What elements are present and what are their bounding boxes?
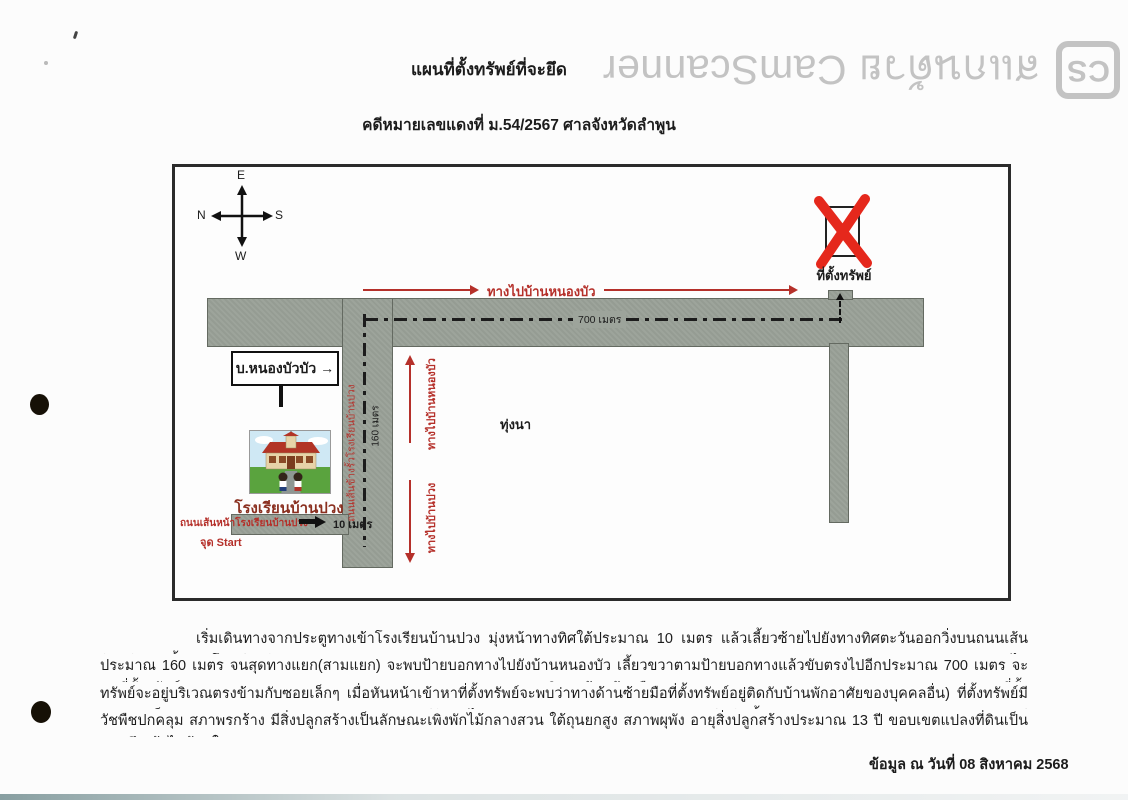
case-number-line: คดีหมายเลขแดงที่ ม.54/2567 ศาลจังหวัดลำพ… (362, 112, 676, 137)
scan-speck-top (73, 31, 78, 40)
driveway-arrow-up-icon (836, 293, 844, 300)
binder-hole-mark-bottom (31, 701, 51, 723)
field-label: ทุ่งนา (500, 414, 531, 435)
driveway-dashed-line (839, 301, 841, 323)
page-title: แผนที่ตั้งทรัพย์ที่จะยึด (411, 56, 567, 83)
side-road-name-label: ถนนเส้นข้างรั้วโรงเรียนบ้านปวง (345, 384, 360, 521)
property-location-label: ที่ตั้งทรัพย์ (816, 265, 871, 286)
distance-label-160m: 160 เมตร (369, 405, 384, 446)
start-point-label: จุด Start (200, 533, 242, 551)
main-road-horizontal (207, 298, 924, 347)
route-down-label: ทางไปบ้านปวง (422, 483, 440, 554)
village-sign-nongbuabua: บ.หนองบัวบัว → (231, 351, 339, 386)
road-centerline-vertical (363, 314, 366, 547)
camscanner-watermark: CS สแกนด้วย CamScanner (585, 30, 1120, 110)
route-up-label: ทางไปบ้านหนองบัว (422, 358, 440, 450)
property-x-mark-icon (809, 191, 877, 271)
route-up-arrow-head-icon (405, 355, 415, 365)
compass-label-top: E (237, 168, 245, 182)
data-as-of-date: ข้อมูล ณ วันที่ 08 สิงหาคม 2568 (869, 753, 1069, 776)
compass-cross-icon (197, 171, 287, 261)
route-arrow-shaft-left (363, 289, 470, 291)
front-road-arrow-shaft (299, 519, 315, 524)
distance-label-700m: 700 เมตร (573, 311, 626, 328)
route-down-arrow-shaft (409, 480, 411, 553)
scan-speck-left (44, 61, 48, 65)
description-line-4: วัชพืชปกคลุม สภาพรกร้าง มีสิ่งปลูกสร้างเ… (100, 709, 1028, 736)
compass-label-left: N (197, 208, 206, 222)
route-arrow-head-right-icon (789, 285, 798, 295)
route-down-arrow-head-icon (405, 553, 415, 563)
distance-label-10m: 10 เมตร (333, 515, 372, 533)
description-line-1: เริ่มเดินทางจากประตูทางเข้าโรงเรียนบ้านป… (100, 627, 1028, 654)
map-frame: E N S W 700 เมตร 160 เมตร ทางไปบ้านหนองบ… (172, 164, 1011, 601)
route-label-to-nongbua: ทางไปบ้านหนองบัว (487, 281, 596, 302)
route-arrow-head-mid-icon (470, 285, 479, 295)
route-arrow-shaft-right (604, 289, 789, 291)
binder-hole-mark-top (30, 394, 49, 415)
watermark-text: สแกนด้วย CamScanner (602, 38, 1040, 103)
description-paragraph: เริ่มเดินทางจากประตูทางเข้าโรงเรียนบ้านป… (100, 627, 1028, 737)
compass-rose: E N S W (197, 171, 287, 261)
compass-label-right: S (275, 208, 283, 222)
route-up-arrow-shaft (409, 363, 411, 443)
description-line-2: ประมาณ 160 เมตร จนสุดทางแยก(สามแยก) จะพบ… (100, 654, 1028, 681)
right-branch-road-vertical (829, 343, 849, 523)
sign-post (279, 386, 283, 407)
school-illustration (249, 430, 331, 494)
scan-edge-strip (0, 794, 1128, 800)
front-road-arrow-head-icon (315, 516, 326, 528)
camscanner-logo-icon: CS (1056, 41, 1120, 99)
scanned-document-page: { "watermark": { "cs_logo": "CS", "text"… (0, 0, 1128, 800)
front-road-name-label: ถนนเส้นหน้าโรงเรียนบ้านปวง (180, 516, 308, 531)
description-line-3: ทรัพย์จะอยู่บริเวณตรงข้ามกับซอยเล็กๆ เมื… (100, 682, 1028, 709)
compass-label-bottom: W (235, 249, 246, 263)
